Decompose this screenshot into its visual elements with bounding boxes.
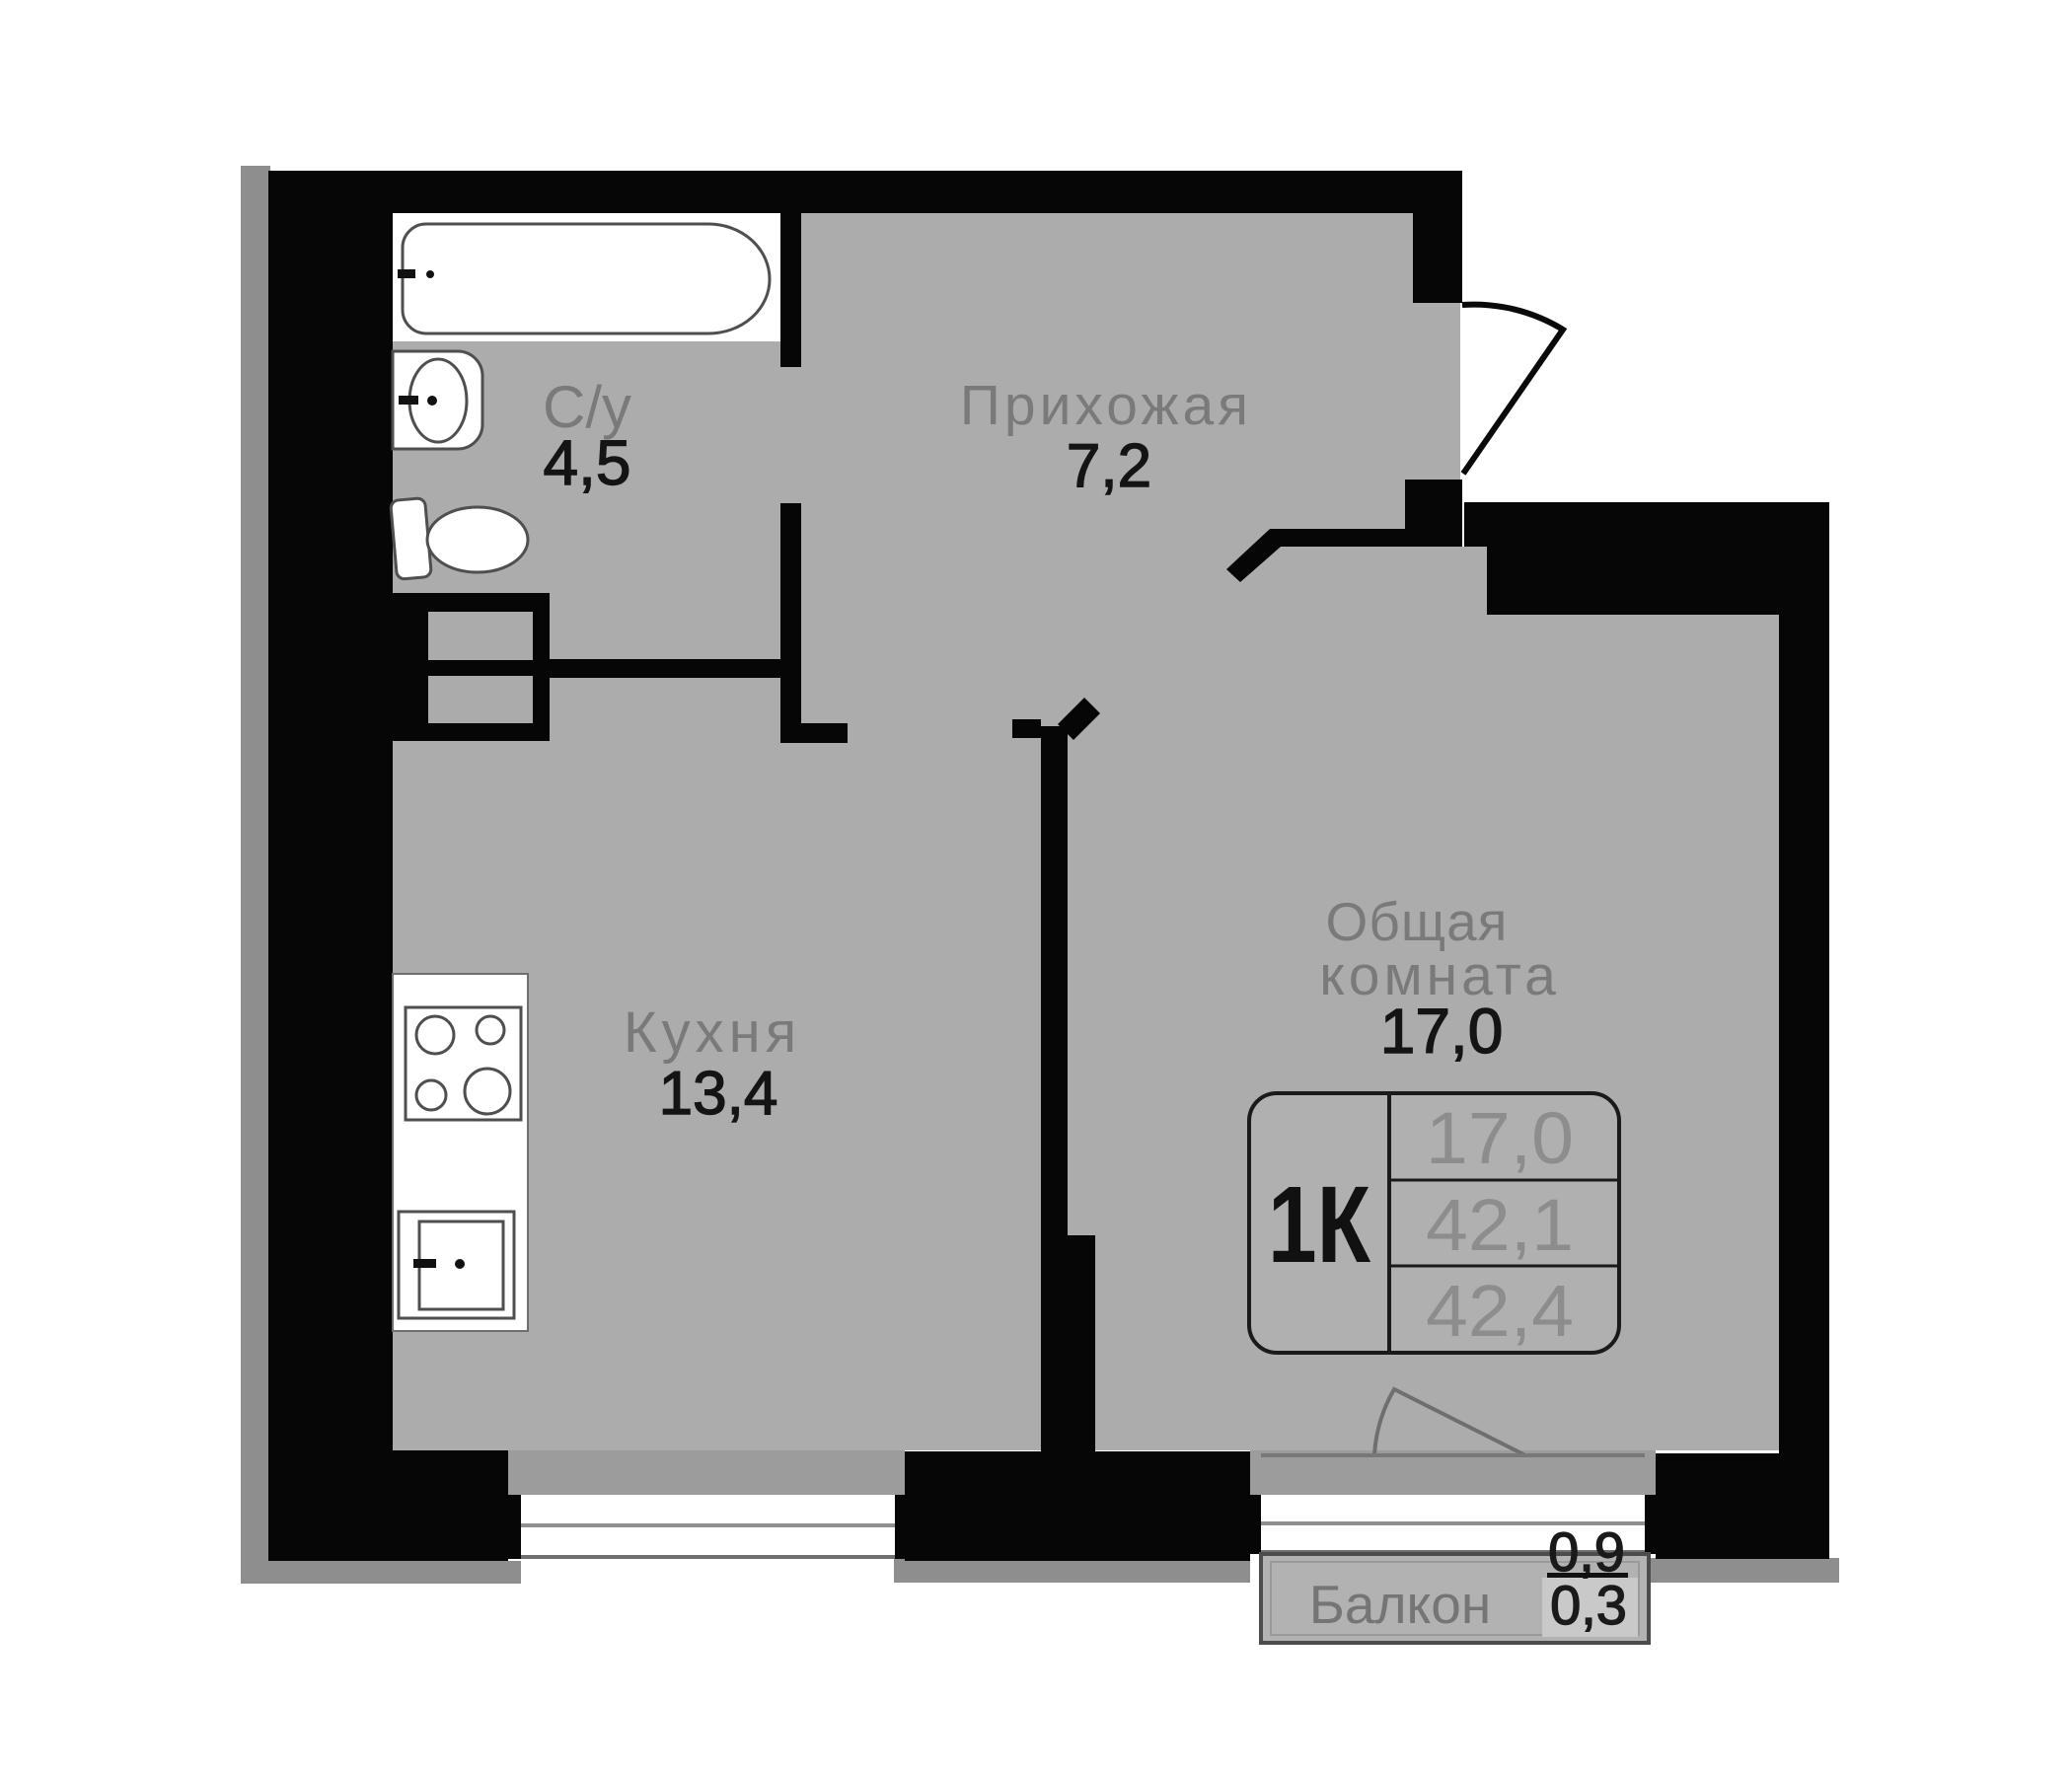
svg-text:17,0: 17,0 bbox=[1380, 996, 1504, 1067]
svg-text:Балкон: Балкон bbox=[1309, 1574, 1491, 1635]
svg-text:42,4: 42,4 bbox=[1426, 1270, 1574, 1352]
svg-text:4,5: 4,5 bbox=[544, 427, 631, 498]
svg-text:42,1: 42,1 bbox=[1426, 1184, 1574, 1266]
svg-text:1К: 1К bbox=[1268, 1164, 1371, 1286]
svg-text:13,4: 13,4 bbox=[659, 1060, 778, 1128]
svg-text:Кухня: Кухня bbox=[624, 1000, 801, 1065]
svg-text:0,3: 0,3 bbox=[1550, 1574, 1627, 1636]
svg-text:Прихожая: Прихожая bbox=[960, 374, 1252, 437]
svg-text:7,2: 7,2 bbox=[1067, 432, 1151, 500]
svg-text:17,0: 17,0 bbox=[1426, 1097, 1574, 1179]
svg-text:Общая: Общая bbox=[1326, 891, 1509, 952]
